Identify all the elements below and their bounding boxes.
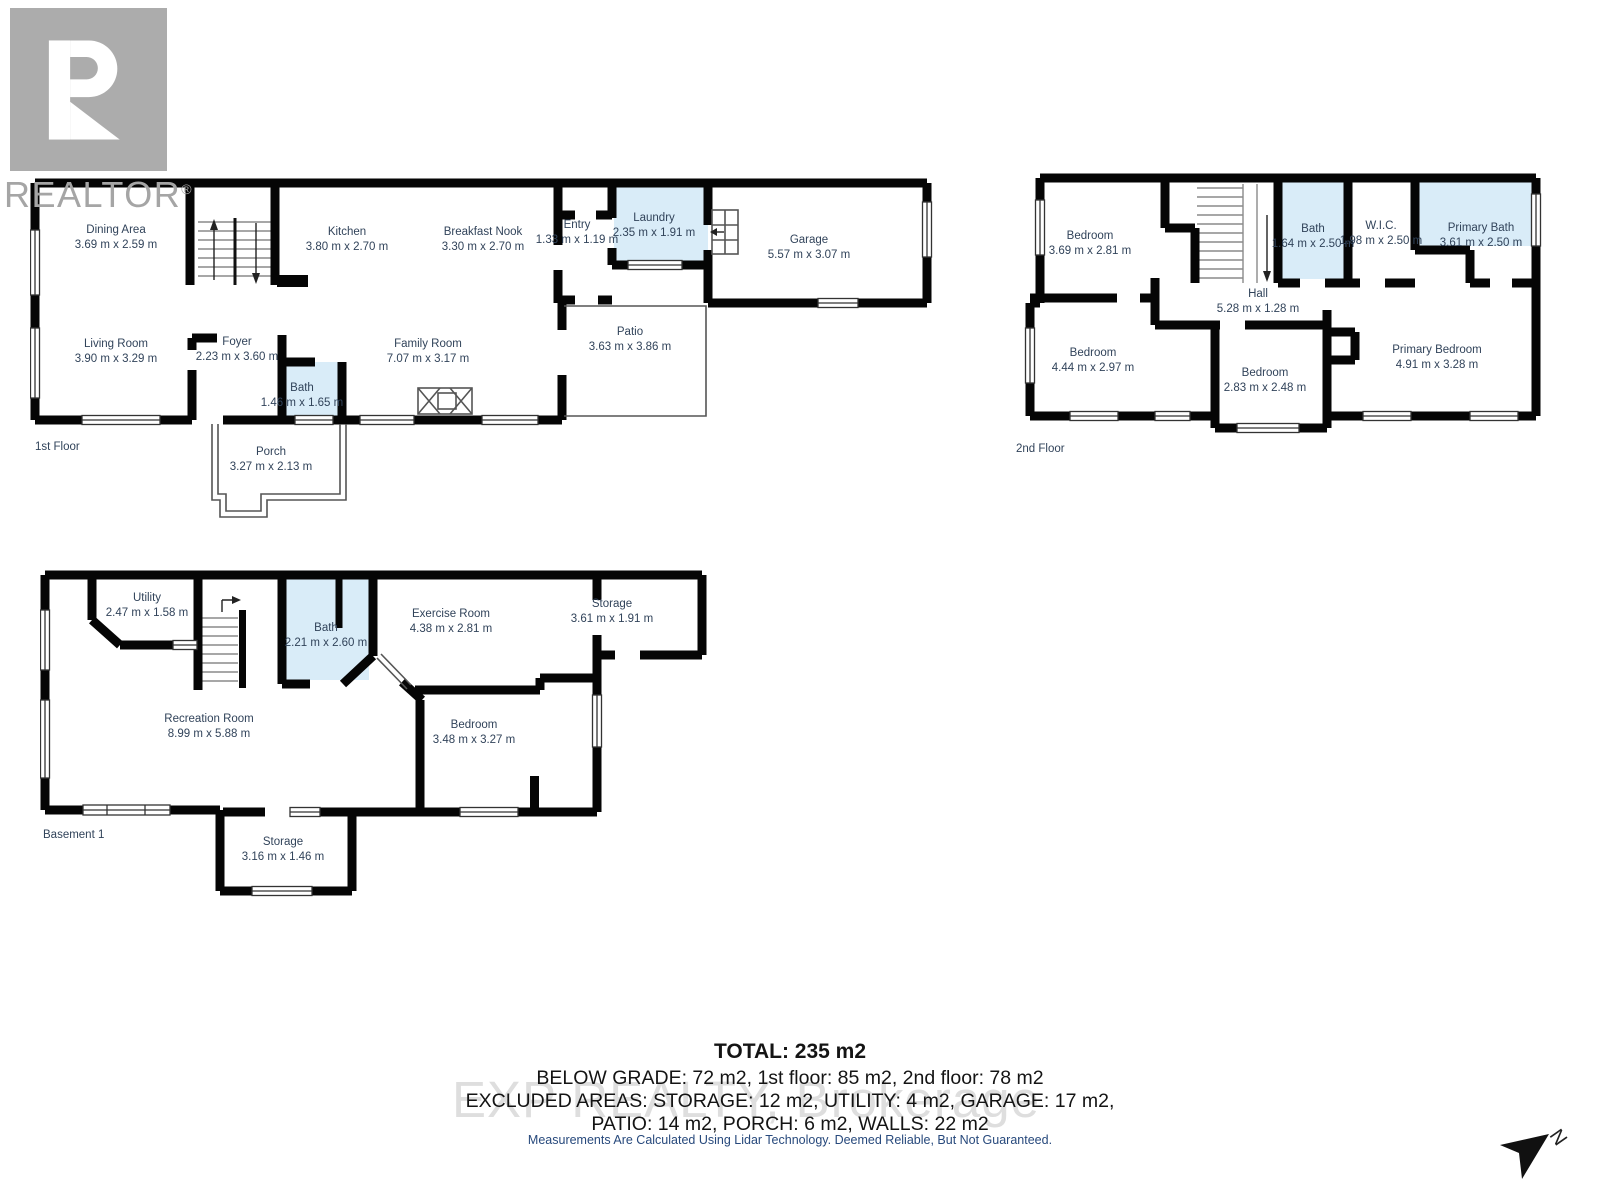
room-label-bath-3: Bath2.21 m x 2.60 m — [285, 621, 367, 651]
room-label-kitchen: Kitchen3.80 m x 2.70 m — [306, 225, 388, 255]
first-floor-tag: 1st Floor — [35, 441, 80, 453]
room-dims: 1.46 m x 1.65 m — [261, 396, 343, 411]
room-name: Primary Bath — [1440, 221, 1522, 236]
room-dims: 3.61 m x 1.91 m — [571, 612, 653, 627]
room-name: Bath — [285, 621, 367, 636]
room-label-recreation-room: Recreation Room8.99 m x 5.88 m — [164, 712, 253, 742]
room-dims: 4.91 m x 3.28 m — [1392, 358, 1481, 373]
north-letter: N — [1545, 1125, 1571, 1149]
summary-line: EXCLUDED AREAS: STORAGE: 12 m2, UTILITY:… — [300, 1090, 1280, 1113]
room-label-bedroom-4: Bedroom3.48 m x 3.27 m — [433, 718, 515, 748]
room-label-garage: Garage5.57 m x 3.07 m — [768, 233, 850, 263]
room-dims: 2.83 m x 2.48 m — [1224, 381, 1306, 396]
room-label-hall: Hall5.28 m x 1.28 m — [1217, 287, 1299, 317]
room-dims: 3.48 m x 3.27 m — [433, 733, 515, 748]
room-name: Foyer — [196, 335, 278, 350]
room-label-bedroom-1: Bedroom3.69 m x 2.81 m — [1049, 229, 1131, 259]
room-dims: 3.63 m x 3.86 m — [589, 340, 671, 355]
second-floor-plan: Bedroom3.69 m x 2.81 m Bath1.64 m x 2.50… — [1015, 170, 1550, 470]
realtor-wordmark: REALTOR — [4, 174, 181, 215]
room-label-primary-bath: Primary Bath3.61 m x 2.50 m — [1440, 221, 1522, 251]
realtor-logo-text: REALTOR® — [4, 174, 224, 216]
room-label-storage-2: Storage3.16 m x 1.46 m — [242, 835, 324, 865]
room-label-storage-1: Storage3.61 m x 1.91 m — [571, 597, 653, 627]
room-name: Bedroom — [433, 718, 515, 733]
room-name: Storage — [242, 835, 324, 850]
room-label-exercise-room: Exercise Room4.38 m x 2.81 m — [410, 607, 492, 637]
room-dims: 8.99 m x 5.88 m — [164, 727, 253, 742]
second-floor-tag: 2nd Floor — [1016, 443, 1065, 455]
room-dims: 1.98 m x 2.50 m — [1340, 234, 1422, 249]
room-label-wic: W.I.C.1.98 m x 2.50 m — [1340, 219, 1422, 249]
room-label-bath-1: Bath1.46 m x 1.65 m — [261, 381, 343, 411]
room-name: Storage — [571, 597, 653, 612]
patio-outline — [564, 306, 706, 416]
basement-floor-plan: Utility2.47 m x 1.58 m Bath2.21 m x 2.60… — [40, 550, 720, 900]
room-name: Dining Area — [75, 223, 157, 238]
room-name: Garage — [768, 233, 850, 248]
room-label-dining-area: Dining Area3.69 m x 2.59 m — [75, 223, 157, 253]
floorplan-sheet: REALTOR® — [0, 0, 1600, 1200]
room-label-laundry: Laundry2.35 m x 1.91 m — [613, 211, 695, 241]
room-dims: 5.57 m x 3.07 m — [768, 248, 850, 263]
stairs — [1197, 184, 1271, 283]
room-dims: 7.07 m x 3.17 m — [387, 352, 469, 367]
room-dims: 3.61 m x 2.50 m — [1440, 236, 1522, 251]
room-name: Family Room — [387, 337, 469, 352]
total-area: TOTAL: 235 m2 — [300, 1040, 1280, 1064]
registered-mark: ® — [181, 181, 193, 197]
room-label-entry: Entry1.33 m x 1.19 m — [536, 218, 618, 248]
room-name: Entry — [536, 218, 618, 233]
measurement-disclaimer: Measurements Are Calculated Using Lidar … — [300, 1133, 1280, 1147]
room-label-utility: Utility2.47 m x 1.58 m — [106, 591, 188, 621]
room-name: Bath — [261, 381, 343, 396]
room-name: Patio — [589, 325, 671, 340]
stairs — [198, 218, 273, 285]
realtor-r-glyph — [30, 28, 148, 152]
room-dims: 3.80 m x 2.70 m — [306, 240, 388, 255]
walls — [35, 183, 927, 420]
basement-floor-tag: Basement 1 — [43, 829, 104, 841]
room-name: Laundry — [613, 211, 695, 226]
realtor-logo-icon — [10, 8, 167, 171]
stairs — [200, 596, 246, 688]
room-label-foyer: Foyer2.23 m x 3.60 m — [196, 335, 278, 365]
summary-line: BELOW GRADE: 72 m2, 1st floor: 85 m2, 2n… — [300, 1067, 1280, 1090]
room-label-family-room: Family Room7.07 m x 3.17 m — [387, 337, 469, 367]
room-name: W.I.C. — [1340, 219, 1422, 234]
room-dims: 2.47 m x 1.58 m — [106, 606, 188, 621]
room-name: Utility — [106, 591, 188, 606]
room-name: Breakfast Nook — [442, 225, 524, 240]
fireplace — [418, 388, 472, 414]
room-label-porch: Porch3.27 m x 2.13 m — [230, 445, 312, 475]
room-dims: 2.35 m x 1.91 m — [613, 226, 695, 241]
room-label-patio: Patio3.63 m x 3.86 m — [589, 325, 671, 355]
room-dims: 4.44 m x 2.97 m — [1052, 361, 1134, 376]
room-dims: 3.16 m x 1.46 m — [242, 850, 324, 865]
room-name: Recreation Room — [164, 712, 253, 727]
room-label-primary-bedroom: Primary Bedroom4.91 m x 3.28 m — [1392, 343, 1481, 373]
room-dims: 3.30 m x 2.70 m — [442, 240, 524, 255]
room-dims: 1.33 m x 1.19 m — [536, 233, 618, 248]
first-floor-plan: Dining Area3.69 m x 2.59 m Kitchen3.80 m… — [30, 170, 940, 522]
room-dims: 4.38 m x 2.81 m — [410, 622, 492, 637]
room-label-bedroom-3: Bedroom2.83 m x 2.48 m — [1224, 366, 1306, 396]
room-name: Exercise Room — [410, 607, 492, 622]
room-dims: 3.90 m x 3.29 m — [75, 352, 157, 367]
room-label-breakfast-nook: Breakfast Nook3.30 m x 2.70 m — [442, 225, 524, 255]
second-floor-drawing — [1015, 170, 1550, 470]
room-name: Porch — [230, 445, 312, 460]
room-name: Bedroom — [1049, 229, 1131, 244]
room-dims: 3.69 m x 2.59 m — [75, 238, 157, 253]
room-name: Kitchen — [306, 225, 388, 240]
room-name: Bedroom — [1224, 366, 1306, 381]
room-dims: 2.21 m x 2.60 m — [285, 636, 367, 651]
area-summary: TOTAL: 235 m2 BELOW GRADE: 72 m2, 1st fl… — [300, 1040, 1280, 1135]
garage-steps — [710, 210, 738, 254]
first-floor-drawing — [30, 170, 940, 522]
room-dims: 3.69 m x 2.81 m — [1049, 244, 1131, 259]
room-label-bedroom-2: Bedroom4.44 m x 2.97 m — [1052, 346, 1134, 376]
north-arrow-icon: N — [1448, 1080, 1600, 1195]
room-name: Primary Bedroom — [1392, 343, 1481, 358]
room-name: Hall — [1217, 287, 1299, 302]
room-name: Living Room — [75, 337, 157, 352]
room-dims: 2.23 m x 3.60 m — [196, 350, 278, 365]
room-dims: 3.27 m x 2.13 m — [230, 460, 312, 475]
room-label-living-room: Living Room3.90 m x 3.29 m — [75, 337, 157, 367]
room-name: Bedroom — [1052, 346, 1134, 361]
room-dims: 5.28 m x 1.28 m — [1217, 302, 1299, 317]
